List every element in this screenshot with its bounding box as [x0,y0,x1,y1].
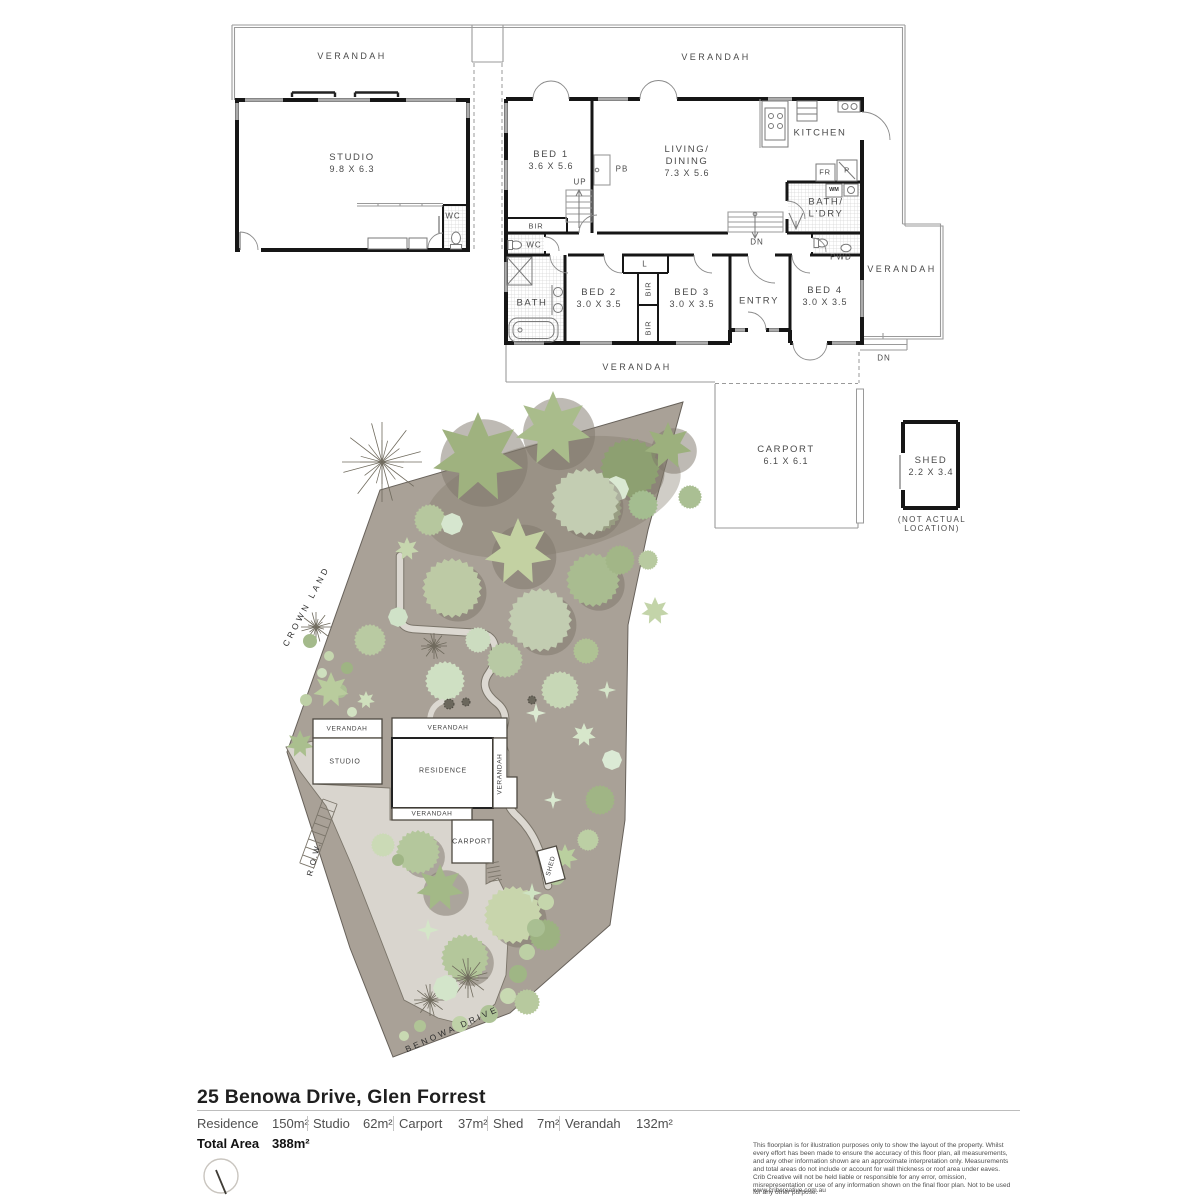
bed3-dims: 3.0 X 3.5 [669,299,714,309]
site-carport-label: CARPORT [452,839,492,846]
site-plan [286,391,702,1057]
house-verandah-top-label: VERANDAH [681,52,750,62]
bath-ldry-l2: L'DRY [808,209,843,220]
bed3-name: BED 3 [669,287,714,298]
site-studio-label: STUDIO [329,759,360,766]
shed-dims: 2.2 X 3.4 [908,467,953,477]
table-separator [307,1116,308,1131]
living-dims: 7.3 X 5.6 [664,168,709,178]
bed2-name: BED 2 [576,287,621,298]
linen-label: L [642,260,647,269]
bir3-label: BIR [644,321,653,336]
area-value-carport: 37m² [458,1116,488,1131]
site-residence-label: RESIDENCE [419,768,467,775]
area-value-shed: 7m² [537,1116,559,1131]
area-label-residence: Residence [197,1116,258,1131]
area-label-shed: Shed [493,1116,523,1131]
studio-label: STUDIO 9.8 X 6.3 [329,152,375,174]
website-url: www.cribcreative.com.au [753,1187,826,1194]
area-label-carport: Carport [399,1116,442,1131]
bed2-dims: 3.0 X 3.5 [576,299,621,309]
page-title: 25 Benowa Drive, Glen Forrest [197,1086,486,1109]
pb-box [594,155,610,185]
bed4-name: BED 4 [802,285,847,296]
carport-name: CARPORT [757,444,814,455]
area-value-studio: 62m² [363,1116,393,1131]
site-verandah1-label: VERANDAH [327,726,368,733]
total-area-value: 388m² [272,1136,310,1151]
shed-note: (NOT ACTUAL LOCATION) [898,515,966,533]
carport-dims: 6.1 X 6.1 [757,456,814,466]
site-verandah2-label: VERANDAH [428,725,469,732]
bed1-name: BED 1 [528,149,573,160]
studio-verandah-label: VERANDAH [317,51,386,61]
p-label: P [844,166,850,175]
up-label: UP [573,178,586,187]
studio-dims: 9.8 X 6.3 [329,164,375,174]
area-value-residence: 150m² [272,1116,309,1131]
bir1-label: BIR [529,222,544,231]
living-l1: LIVING/ [664,144,709,155]
house-verandah-bottom-label: VERANDAH [602,362,671,372]
stairs-down [728,212,783,238]
dn-label: DN [750,238,764,247]
pwd-label: PWD [830,253,852,262]
bed4-dims: 3.0 X 3.5 [802,297,847,307]
bed4-label: BED 4 3.0 X 3.5 [802,285,847,307]
carport-gate [857,389,864,523]
bir2-label: BIR [644,282,653,297]
compass [204,1159,238,1194]
bath-label: BATH [516,298,547,309]
bath-ldry-l1: BATH/ [808,197,843,208]
area-value-verandah: 132m² [636,1116,673,1131]
entry-label: ENTRY [739,296,779,307]
shed-note1: (NOT ACTUAL [898,515,966,524]
studio-name: STUDIO [329,152,375,163]
wm-label: WM [829,187,839,193]
house-verandah-right-label: VERANDAH [867,264,936,274]
kitchen-label: KITCHEN [794,128,847,139]
bed1-dims: 3.6 X 5.6 [528,161,573,171]
wc-hall-label: WC [526,241,541,250]
shed-note2: LOCATION) [898,524,966,533]
site-verandah3-label: VERANDAH [412,811,453,818]
studio-wc-label: WC [445,212,460,221]
table-separator [559,1116,560,1131]
area-label-studio: Studio [313,1116,350,1131]
table-separator [393,1116,394,1131]
floorplan-page: VERANDAH STUDIO 9.8 X 6.3 WC VERANDAH BE… [0,0,1200,1200]
bed1-label: BED 1 3.6 X 5.6 [528,149,573,171]
bath-ldry-label: BATH/ L'DRY [808,197,843,220]
divider-rule [197,1110,1020,1111]
shed-label: SHED 2.2 X 3.4 [908,455,953,477]
living-label: LIVING/ DINING 7.3 X 5.6 [664,144,709,178]
area-label-verandah: Verandah [565,1116,621,1131]
stairs-up [566,190,592,228]
dn-right-label: DN [877,354,891,363]
pb-label: PB [616,165,629,174]
fr-label: FR [819,168,831,177]
shed-name: SHED [908,455,953,466]
plan-graphics [0,0,1200,1200]
bed2-label: BED 2 3.0 X 3.5 [576,287,621,309]
living-l2: DINING [664,156,709,167]
site-verandah-v-label: VERANDAH [497,754,504,795]
carport-label: CARPORT 6.1 X 6.1 [757,444,814,466]
table-separator [487,1116,488,1131]
bed3-label: BED 3 3.0 X 3.5 [669,287,714,309]
total-area-label: Total Area [197,1136,259,1151]
